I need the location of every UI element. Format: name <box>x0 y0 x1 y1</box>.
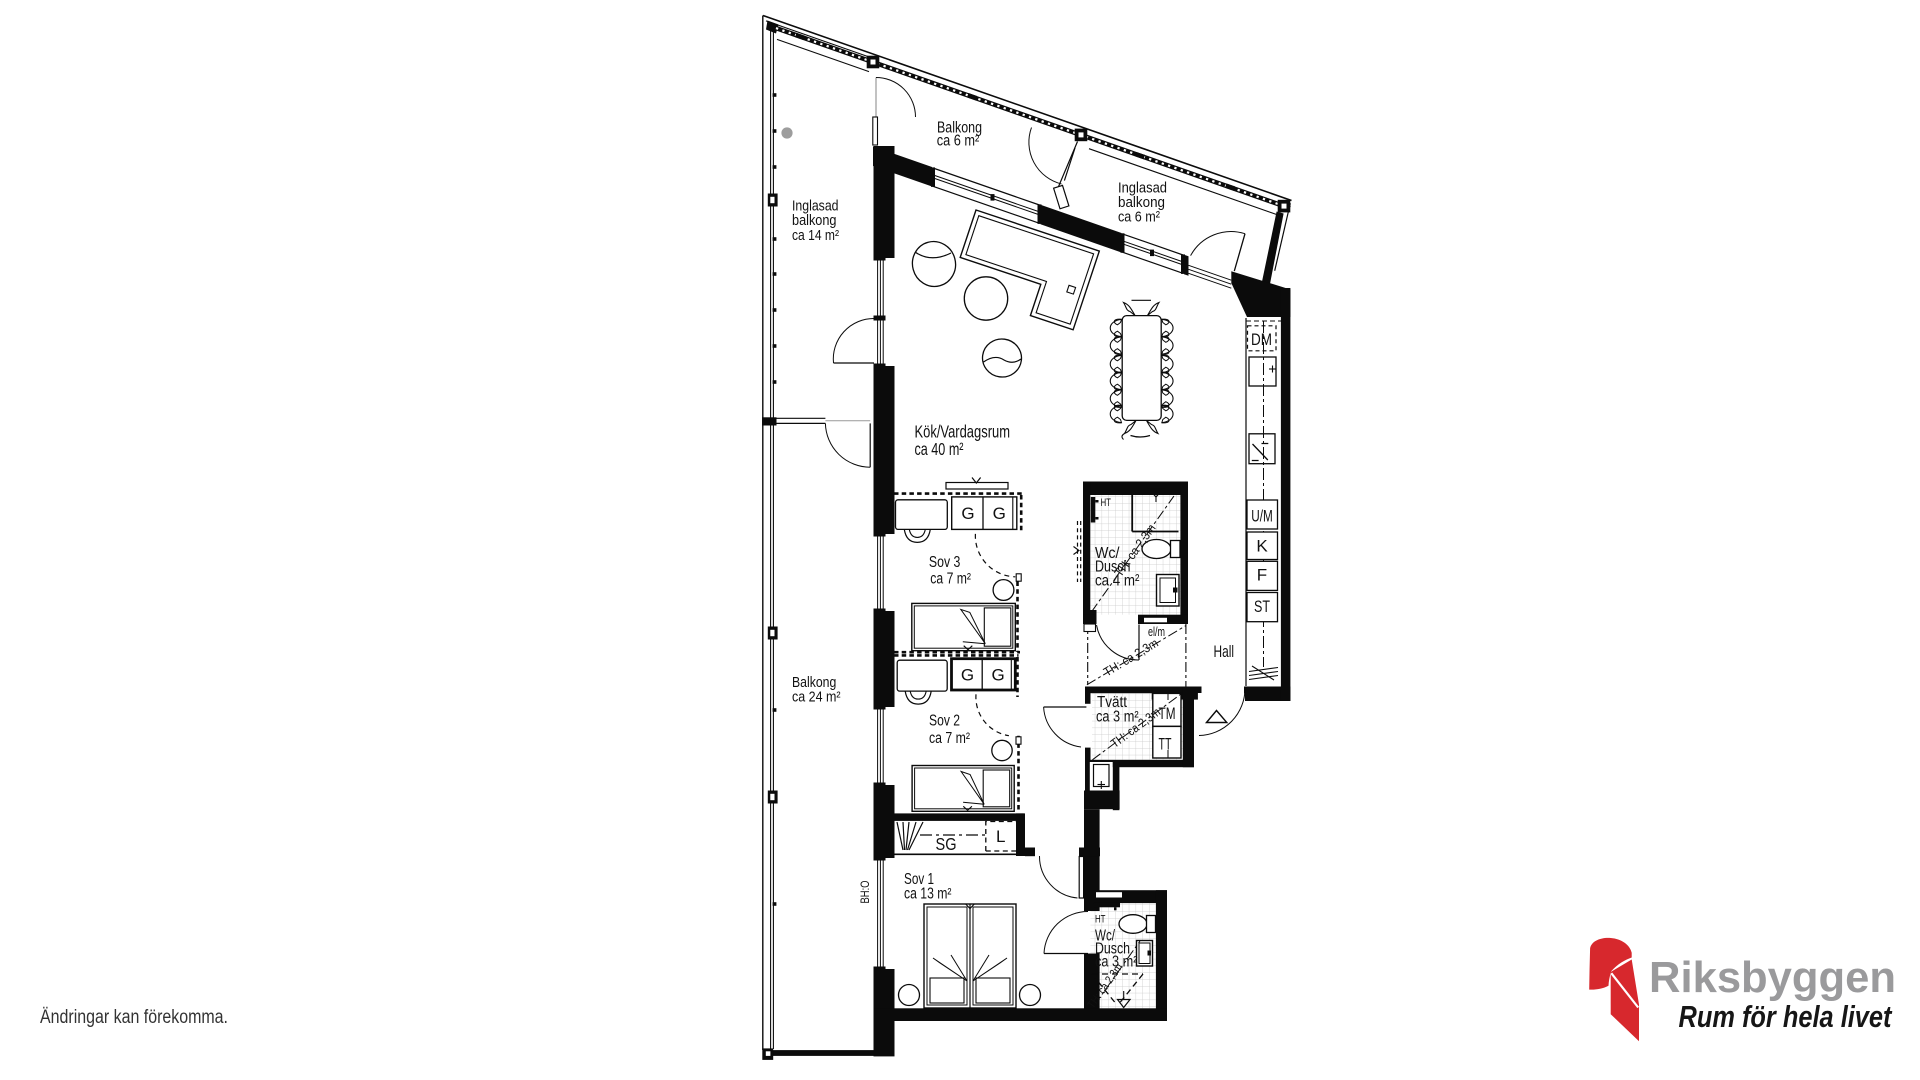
svg-text:G: G <box>961 504 974 523</box>
svg-text:G: G <box>961 665 974 684</box>
svg-text:G: G <box>991 665 1004 684</box>
svg-text:DM: DM <box>1251 330 1272 349</box>
svg-text:F: F <box>1257 566 1267 585</box>
svg-text:ca 7 m²: ca 7 m² <box>929 730 970 747</box>
svg-text:ca 7 m²: ca 7 m² <box>930 570 971 587</box>
svg-text:ca 13 m²: ca 13 m² <box>904 886 952 903</box>
svg-text:ca 3 m²: ca 3 m² <box>1095 954 1138 971</box>
svg-text:Hall: Hall <box>1214 642 1235 661</box>
svg-text:G: G <box>993 504 1006 523</box>
svg-text:Riksbyggen: Riksbyggen <box>1649 954 1896 1002</box>
svg-text:ST: ST <box>1254 597 1270 616</box>
svg-text:TT: TT <box>1159 735 1172 754</box>
svg-text:TM: TM <box>1159 704 1176 723</box>
svg-text:ca 14 m²: ca 14 m² <box>792 228 839 244</box>
svg-text:HT: HT <box>1101 497 1112 509</box>
svg-text:el/m: el/m <box>1148 625 1165 639</box>
svg-text:ca 24 m²: ca 24 m² <box>792 689 841 705</box>
svg-text:SG: SG <box>936 834 957 854</box>
svg-text:Sov 3: Sov 3 <box>929 554 961 571</box>
svg-text:BH:O: BH:O <box>860 880 872 903</box>
svg-text:Sov 2: Sov 2 <box>929 713 960 730</box>
svg-text:Rum för hela livet: Rum för hela livet <box>1679 999 1893 1034</box>
svg-text:ca 40 m²: ca 40 m² <box>915 439 964 459</box>
svg-text:Ändringar kan förekomma.: Ändringar kan förekomma. <box>40 1007 228 1028</box>
svg-text:K: K <box>1256 537 1268 556</box>
svg-text:U/M: U/M <box>1251 507 1273 526</box>
svg-text:ca 4 m²: ca 4 m² <box>1095 573 1140 590</box>
svg-text:ca 6 m²: ca 6 m² <box>937 132 980 149</box>
svg-text:L: L <box>996 827 1005 846</box>
svg-text:ca 6 m²: ca 6 m² <box>1118 209 1160 226</box>
svg-text:ca 3 m²: ca 3 m² <box>1096 709 1139 726</box>
svg-text:HT: HT <box>1095 914 1106 926</box>
svg-text:balkong: balkong <box>792 213 837 229</box>
